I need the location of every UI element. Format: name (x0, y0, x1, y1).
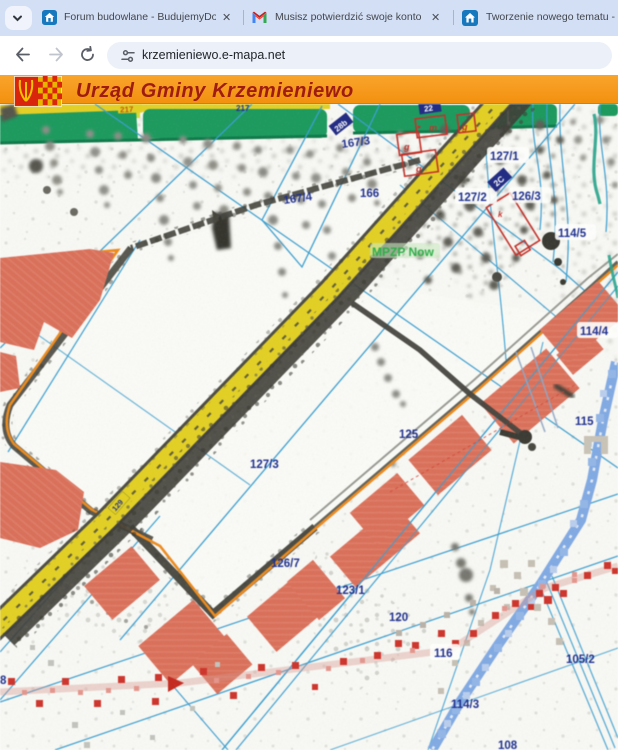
svg-text:127/3: 127/3 (250, 459, 279, 471)
svg-text:105/2: 105/2 (566, 654, 595, 666)
svg-text:127/1: 127/1 (490, 151, 519, 163)
svg-text:217: 217 (236, 104, 250, 113)
svg-text:123/1: 123/1 (336, 585, 365, 597)
svg-text:108: 108 (498, 740, 518, 750)
svg-text:8: 8 (0, 675, 7, 687)
svg-text:217: 217 (120, 105, 134, 114)
svg-text:120: 120 (389, 612, 408, 624)
svg-text:22: 22 (424, 104, 435, 114)
svg-text:127/2: 127/2 (458, 192, 487, 204)
svg-text:MPZP Now: MPZP Now (372, 245, 434, 259)
svg-text:126/7: 126/7 (271, 558, 300, 570)
svg-text:114/5: 114/5 (558, 228, 587, 240)
svg-text:114/4: 114/4 (580, 326, 609, 338)
svg-text:116: 116 (434, 648, 453, 660)
svg-text:166: 166 (360, 188, 379, 200)
svg-text:125: 125 (399, 429, 419, 441)
svg-text:114/3: 114/3 (451, 699, 479, 711)
svg-text:115: 115 (575, 416, 594, 428)
svg-text:126/3: 126/3 (512, 191, 541, 203)
